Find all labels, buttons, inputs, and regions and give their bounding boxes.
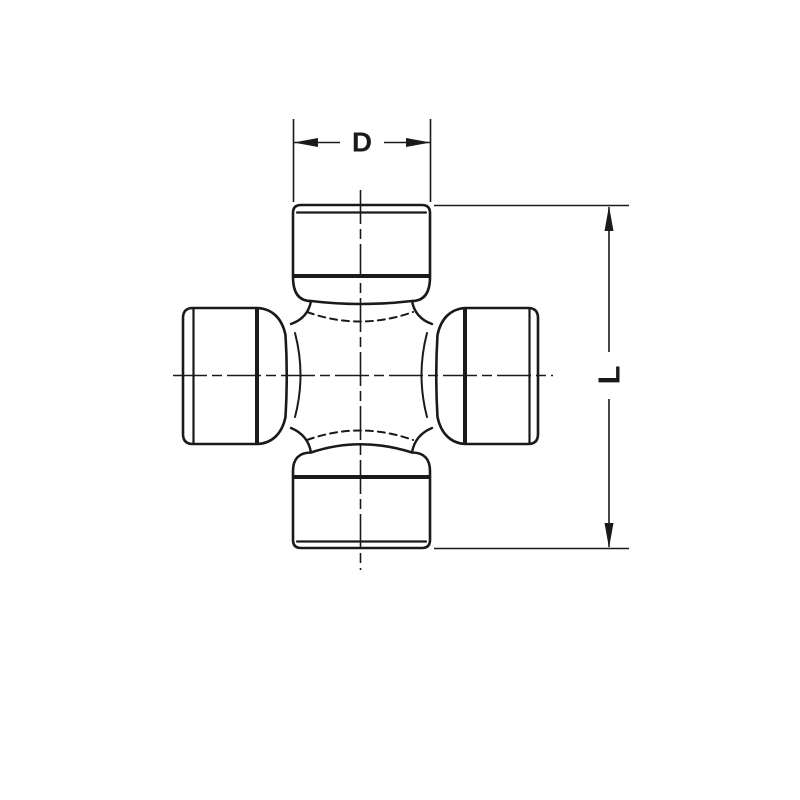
dimension-d: D [294,119,431,202]
universal-joint-diagram: D L [0,0,800,800]
dimension-l-label: L [592,366,627,385]
bottom-bearing-cup [293,444,430,548]
fillet-bottom-right [412,428,432,453]
shoulder-arc-right [422,333,428,417]
l-arrow-down-icon [605,523,614,548]
bottom-cup-outline [293,444,430,548]
top-bearing-cup [293,205,430,304]
center-cross-hub [291,301,432,453]
d-arrow-right-icon [406,138,431,147]
drawing-page: D L [0,0,800,800]
dimension-d-label: D [352,127,372,158]
d-arrow-left-icon [294,138,319,147]
top-cup-outline [293,205,430,304]
fillet-top-right [412,301,432,324]
l-arrow-up-icon [605,206,614,231]
centerlines [173,190,553,570]
